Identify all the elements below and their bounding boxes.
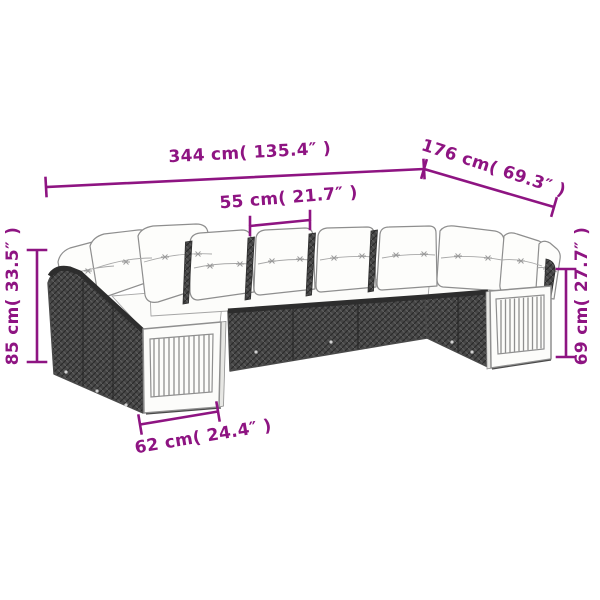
dim-total-width-line	[46, 160, 425, 196]
dim-total-width: 344 cm( 135.4″ )	[46, 139, 425, 196]
product-dimension-diagram: 344 cm( 135.4″ ) 176 cm( 69.3″ ) 55 cm( …	[0, 0, 600, 600]
dim-total-width-label: 344 cm( 135.4″ )	[168, 139, 332, 167]
dim-total-depth-label: 176 cm( 69.3″ )	[419, 135, 568, 201]
dim-total-depth: 176 cm( 69.3″ )	[419, 135, 568, 215]
left-slat-panel	[143, 322, 226, 415]
dim-back-height: 85 cm( 33.5″ )	[3, 227, 46, 365]
dim-seat-width-label: 55 cm( 21.7″ )	[219, 183, 359, 214]
dim-arm-height-label: 69 cm( 27.7″ )	[572, 227, 592, 365]
right-slat-panel	[486, 286, 551, 369]
dim-arm-height: 69 cm( 27.7″ )	[557, 227, 592, 365]
dim-back-height-label: 85 cm( 33.5″ )	[3, 227, 23, 365]
diagram-canvas: 344 cm( 135.4″ ) 176 cm( 69.3″ ) 55 cm( …	[0, 0, 600, 600]
sofa-line-art	[48, 224, 560, 414]
dim-back-height-line	[28, 250, 46, 362]
